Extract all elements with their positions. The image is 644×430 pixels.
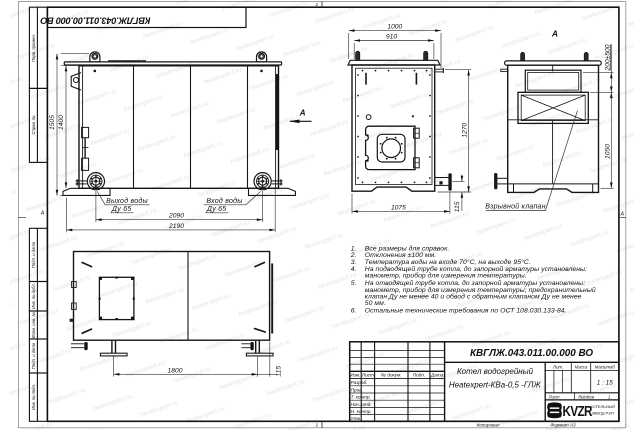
svg-text:Температура воды на входе 70°С: Температура воды на входе 70°С, на выход… — [365, 258, 531, 266]
svg-text:Ду 65: Ду 65 — [206, 206, 227, 213]
svg-text:Вход воды: Вход воды — [206, 197, 243, 205]
svg-text:Копировал: Копировал — [477, 422, 500, 427]
svg-text:Н. контр.: Н. контр. — [351, 409, 372, 414]
svg-text:Т. контр.: Т. контр. — [351, 395, 371, 400]
svg-text:КВГЛЖ.043.011.00.000 ВО: КВГЛЖ.043.011.00.000 ВО — [41, 15, 151, 25]
svg-text:Утв.: Утв. — [351, 416, 362, 421]
svg-text:KVZR: KVZR — [563, 403, 593, 420]
svg-text:А: А — [620, 212, 625, 218]
svg-text:1505: 1505 — [49, 115, 56, 130]
svg-text:Ду 65: Ду 65 — [111, 206, 132, 213]
svg-text:115: 115 — [276, 366, 283, 377]
svg-text:4.: 4. — [351, 266, 357, 273]
svg-text:Инв. № подл.: Инв. № подл. — [31, 384, 36, 410]
svg-text:Дата: Дата — [430, 373, 444, 378]
svg-text:А: А — [299, 109, 306, 118]
svg-text:Heatexpert-КВа-0,5 -ГЛЖ: Heatexpert-КВа-0,5 -ГЛЖ — [449, 381, 542, 390]
svg-text:5.: 5. — [351, 280, 357, 287]
svg-text:1075: 1075 — [391, 205, 406, 212]
svg-text:Остальные технические требован: Остальные технические требования по ОСТ … — [365, 306, 567, 314]
svg-text:А: А — [40, 211, 45, 217]
svg-text:1400: 1400 — [58, 115, 65, 130]
svg-text:Нач. отд.: Нач. отд. — [351, 402, 372, 407]
svg-text:манометр, прибор для измерения: манометр, прибор для измерения температу… — [365, 286, 596, 294]
svg-text:910: 910 — [386, 34, 397, 41]
svg-text:Котел водогрейный: Котел водогрейный — [457, 367, 534, 376]
svg-text:клапан Ду не менее 40 и обвод: клапан Ду не менее 40 и обвод с обратным… — [365, 293, 582, 301]
svg-text:50 мм.: 50 мм. — [365, 300, 386, 307]
svg-text:Справ. №: Справ. № — [31, 115, 36, 134]
svg-text:200±500: 200±500 — [604, 44, 611, 71]
svg-text:Лист: Лист — [361, 373, 374, 378]
svg-text:КОТЕЛЬНЫЙ: КОТЕЛЬНЫЙ — [590, 404, 615, 409]
svg-text:1800: 1800 — [168, 367, 183, 374]
svg-text:Подп. и дата: Подп. и дата — [31, 342, 36, 369]
svg-text:Подп.: Подп. — [413, 373, 425, 378]
svg-text:ЗАВОД РЭП: ЗАВОД РЭП — [591, 411, 614, 416]
svg-text:1000: 1000 — [387, 24, 402, 31]
svg-text:Масштаб: Масштаб — [595, 364, 616, 369]
svg-text:Перв. примен.: Перв. примен. — [31, 34, 36, 62]
svg-text:Формат А3: Формат А3 — [550, 422, 576, 427]
svg-text:Лит.: Лит. — [552, 364, 563, 369]
svg-text:115: 115 — [454, 201, 461, 212]
svg-text:Выход воды: Выход воды — [106, 197, 148, 205]
svg-text:2190: 2190 — [168, 223, 184, 230]
svg-text:Взрывной клапан: Взрывной клапан — [485, 203, 546, 211]
svg-text:2090: 2090 — [168, 213, 184, 220]
svg-text:Инв. № дубл.: Инв. № дубл. — [31, 283, 36, 309]
svg-text:Изм.: Изм. — [350, 373, 360, 378]
svg-text:Масса: Масса — [575, 364, 588, 369]
svg-text:На подводящей трубе котла, до: На подводящей трубе котла, до запорной а… — [365, 265, 587, 273]
svg-text:Подп. и дата: Подп. и дата — [31, 241, 36, 268]
svg-text:1 : 15: 1 : 15 — [597, 380, 613, 387]
svg-text:1270: 1270 — [462, 122, 469, 137]
svg-text:На отводящей трубе котла, до з: На отводящей трубе котла, до запорной ар… — [365, 279, 585, 287]
svg-text:Разраб.: Разраб. — [351, 380, 368, 385]
svg-text:№ докум.: № докум. — [381, 373, 402, 378]
svg-text:Пров.: Пров. — [351, 387, 363, 392]
svg-text:манометр, прибор для измерения: манометр, прибор для измерения температу… — [365, 272, 527, 280]
svg-text:А: А — [551, 29, 558, 39]
svg-text:1050: 1050 — [604, 144, 611, 159]
svg-text:Лист: Лист — [548, 394, 560, 399]
svg-text:6.: 6. — [351, 307, 357, 314]
svg-text:КВГЛЖ.043.011.00.000 ВО: КВГЛЖ.043.011.00.000 ВО — [470, 348, 593, 359]
svg-text:Листов: Листов — [577, 394, 594, 399]
svg-text:Взам. инв. №: Взам. инв. № — [31, 312, 36, 338]
